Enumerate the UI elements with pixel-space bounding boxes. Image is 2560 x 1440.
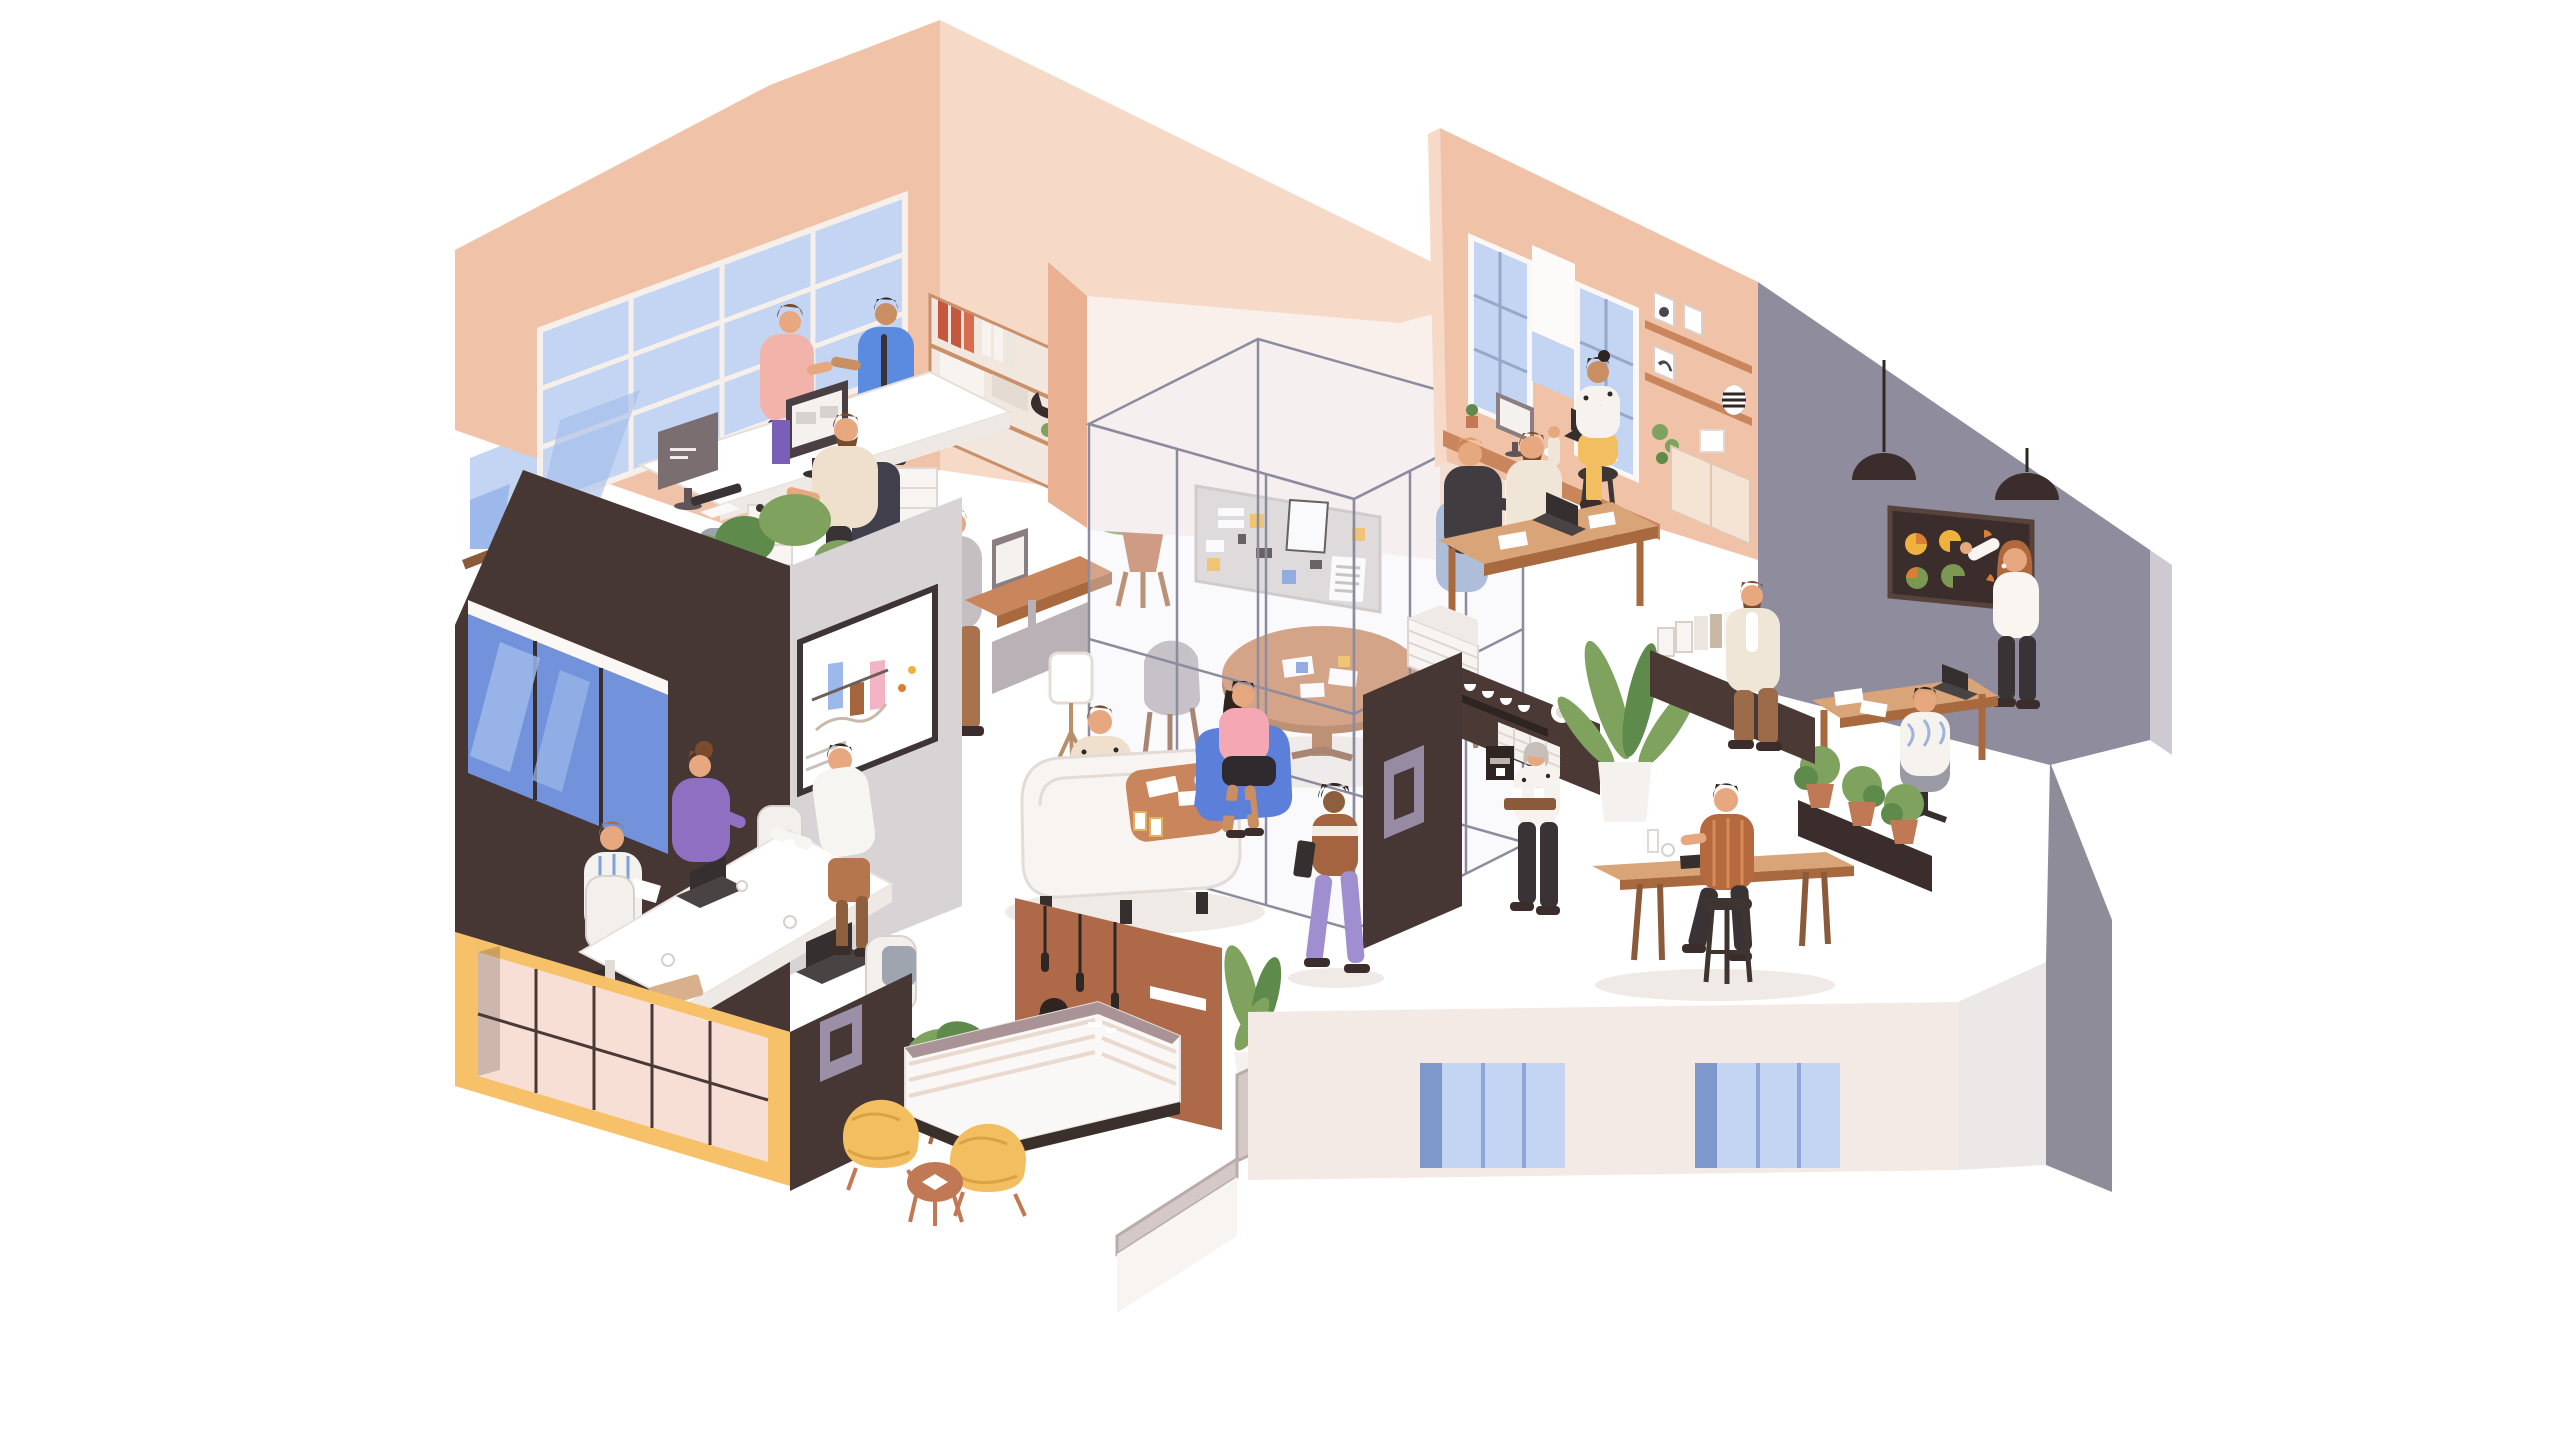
isometric-office-scene — [0, 0, 2560, 1440]
roller-banner — [1532, 245, 1575, 400]
coffee-machine — [1486, 746, 1514, 780]
facade-window-2 — [1695, 1063, 1840, 1168]
illustration-canvas: Flat-style isometric cutaway illustratio… — [0, 0, 2560, 1440]
ledge-cactus — [1466, 404, 1478, 428]
room-meeting — [455, 470, 962, 1191]
yellow-ball-chair-1 — [843, 1100, 919, 1190]
striped-vase — [1722, 385, 1746, 415]
bar-partition — [1363, 652, 1462, 949]
facade-window-1 — [1420, 1063, 1565, 1168]
yellow-ball-chair-2 — [950, 1124, 1026, 1216]
room-presentation — [1758, 282, 2172, 892]
potted-shrub-3 — [1881, 784, 1924, 844]
purple-binder — [772, 420, 790, 464]
side-table — [907, 1162, 963, 1226]
right-corner-wedge — [1958, 762, 2112, 1192]
potted-shrub-2 — [1842, 766, 1885, 826]
lower-facade — [1248, 1002, 1958, 1180]
